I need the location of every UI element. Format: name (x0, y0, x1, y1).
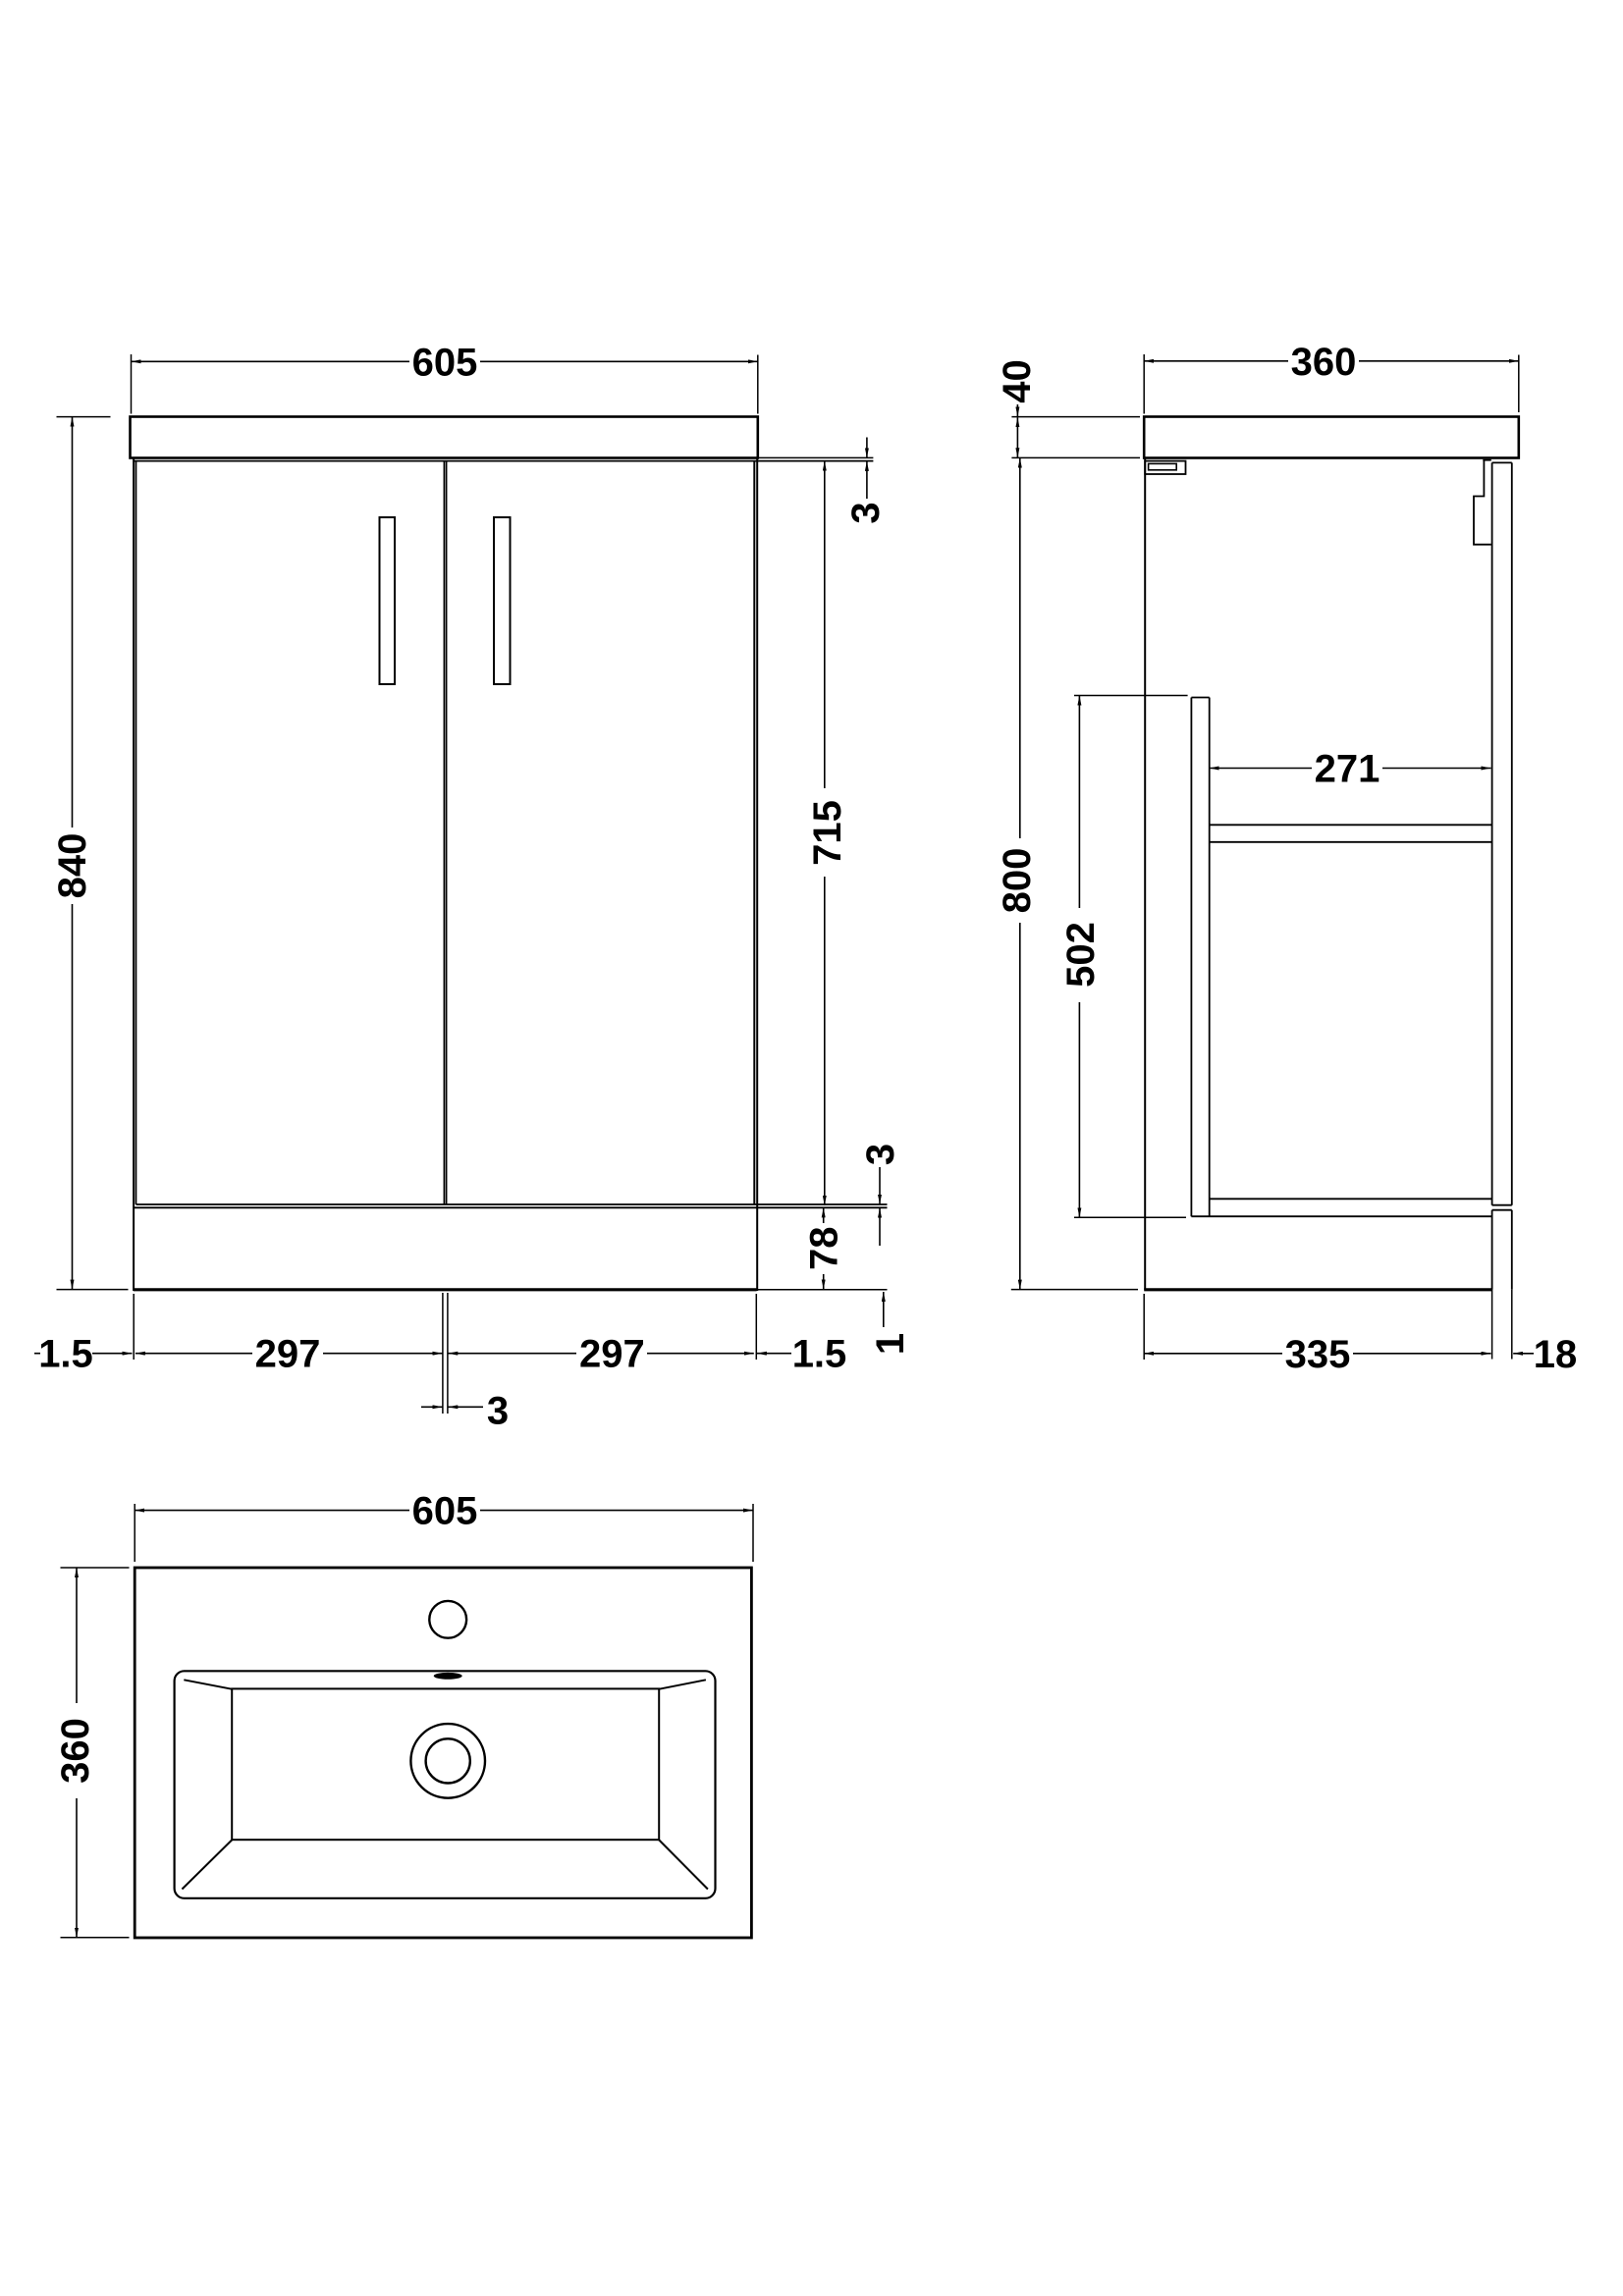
svg-text:40: 40 (996, 359, 1039, 403)
svg-text:800: 800 (996, 848, 1039, 914)
svg-text:3: 3 (844, 502, 888, 523)
svg-text:18: 18 (1534, 1333, 1578, 1376)
svg-text:502: 502 (1059, 922, 1103, 988)
svg-text:271: 271 (1315, 748, 1380, 791)
svg-text:1.5: 1.5 (792, 1333, 847, 1376)
svg-text:335: 335 (1285, 1333, 1351, 1376)
svg-text:1.5: 1.5 (38, 1333, 93, 1376)
svg-text:3: 3 (859, 1144, 902, 1165)
svg-text:360: 360 (1291, 341, 1357, 384)
svg-text:297: 297 (579, 1333, 645, 1376)
svg-text:360: 360 (54, 1718, 97, 1784)
svg-text:840: 840 (51, 833, 94, 899)
svg-text:605: 605 (412, 1490, 478, 1533)
svg-text:78: 78 (803, 1226, 846, 1270)
svg-text:715: 715 (806, 800, 849, 866)
svg-text:297: 297 (255, 1333, 321, 1376)
svg-text:605: 605 (412, 342, 478, 385)
svg-text:3: 3 (487, 1390, 509, 1433)
svg-text:1: 1 (869, 1333, 912, 1355)
